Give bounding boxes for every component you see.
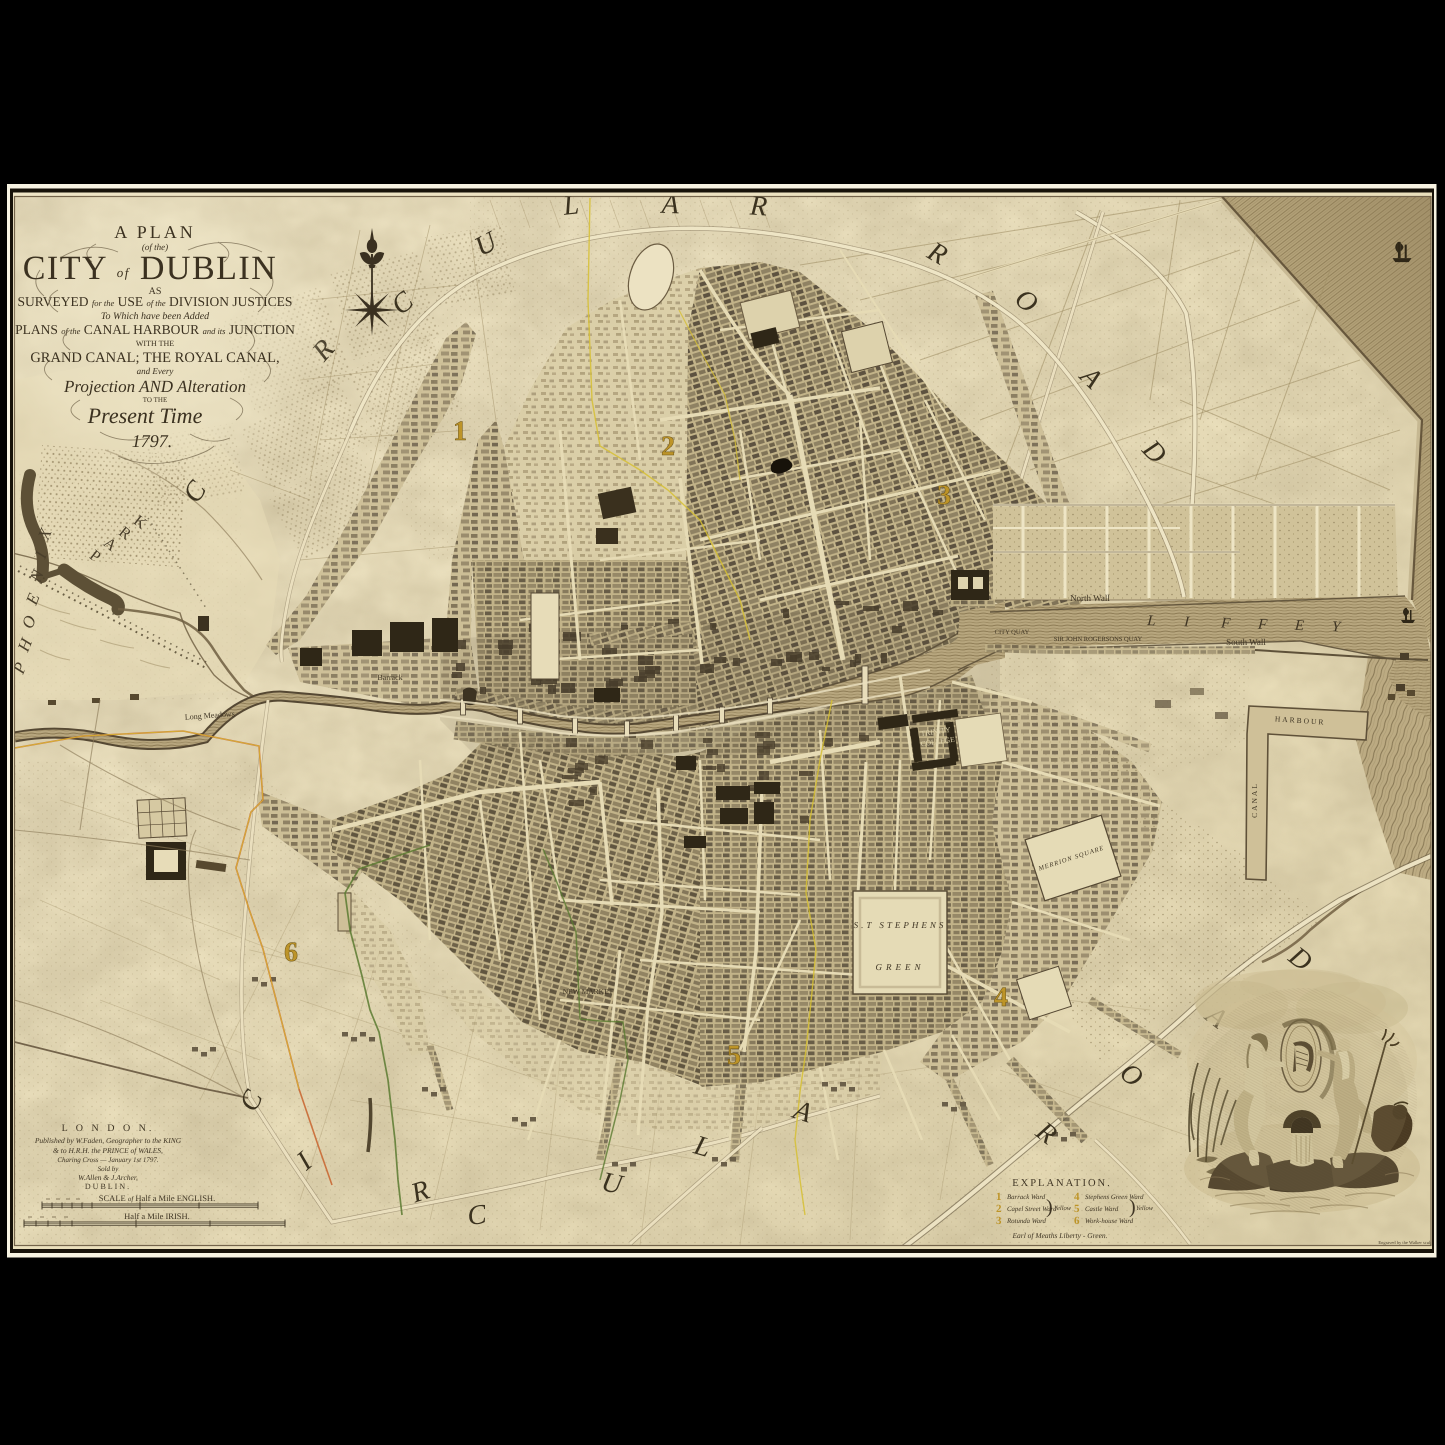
svg-text:Rotunda Ward: Rotunda Ward [1006,1218,1047,1225]
svg-text:6: 6 [284,937,298,968]
svg-text:WITH THE: WITH THE [136,339,174,348]
svg-text:2: 2 [996,1203,1002,1215]
svg-text:E: E [1293,618,1304,635]
svg-text:GRAND CANAL; THE ROYAL CANAL,: GRAND CANAL; THE ROYAL CANAL, [30,350,279,366]
svg-text:3: 3 [937,480,951,511]
svg-text:SIR JOHN ROGERSONS QUAY: SIR JOHN ROGERSONS QUAY [1054,636,1143,643]
svg-text:DUBLIN.: DUBLIN. [85,1182,131,1191]
svg-text:3: 3 [996,1215,1002,1227]
svg-text:5: 5 [1074,1203,1080,1215]
svg-text:Charing Cross — January 1st 17: Charing Cross — January 1st 1797. [57,1156,159,1164]
svg-text:CANAL: CANAL [1250,782,1259,818]
svg-text:5: 5 [727,1040,741,1071]
svg-text:Half a Mile IRISH.: Half a Mile IRISH. [124,1211,190,1221]
svg-text:SCALE of Half a Mile ENGLISH.: SCALE of Half a Mile ENGLISH. [99,1193,215,1203]
svg-text:Present Time: Present Time [87,403,203,428]
svg-text:North Wall: North Wall [1070,593,1110,603]
svg-text:Earl of Meaths Liberty - Green: Earl of Meaths Liberty - Green. [1011,1231,1107,1240]
svg-text:GREEN: GREEN [876,962,925,972]
svg-text:EXPLANATION.: EXPLANATION. [1012,1178,1112,1189]
svg-text:L: L [1146,613,1156,630]
svg-text:4: 4 [1074,1191,1080,1203]
svg-text:Barrack: Barrack [377,673,402,682]
svg-text:2: 2 [661,431,675,462]
svg-text:Published by W.Faden, Geograph: Published by W.Faden, Geographer to the … [34,1136,182,1145]
svg-text:Projection AND Alteration: Projection AND Alteration [63,377,246,396]
svg-text:To Which have been Added: To Which have been Added [101,311,210,322]
svg-text:L O N D O N.: L O N D O N. [62,1123,155,1134]
svg-text:Yellow: Yellow [1054,1205,1072,1212]
svg-text:4: 4 [994,982,1008,1013]
svg-text:Engraved by the Walker sculp.: Engraved by the Walker sculp. [1378,1240,1433,1245]
svg-text:CITY of DUBLIN: CITY of DUBLIN [23,248,278,287]
svg-text:S.T STEPHENS: S.T STEPHENS [854,920,947,930]
svg-text:Sold by: Sold by [98,1165,120,1173]
svg-text:AS: AS [149,286,162,297]
svg-text:Yellow: Yellow [1136,1205,1154,1212]
svg-text:1797.: 1797. [132,431,173,451]
svg-text:): ) [1129,1196,1136,1218]
svg-text:CITY QUAY: CITY QUAY [995,629,1030,636]
svg-text:Work-house Ward: Work-house Ward [1085,1218,1134,1225]
svg-text:& to H.R.H. the PRINCE of WALE: & to H.R.H. the PRINCE of WALES, [53,1146,163,1155]
svg-text:F: F [1220,615,1232,632]
svg-text:Barrack Ward: Barrack Ward [1007,1194,1046,1201]
svg-text:1: 1 [996,1191,1002,1203]
svg-text:): ) [1046,1196,1053,1218]
svg-text:Castle Ward: Castle Ward [1085,1206,1119,1213]
svg-text:W.Allen & J.Archer,: W.Allen & J.Archer, [78,1173,138,1182]
svg-text:and Every: and Every [137,366,174,376]
svg-text:F: F [1256,617,1268,634]
svg-text:NEW MARKET: NEW MARKET [563,987,614,996]
svg-text:1: 1 [453,416,467,447]
svg-text:6: 6 [1074,1215,1080,1227]
svg-text:South Wall: South Wall [1226,637,1266,647]
svg-text:A PLAN: A PLAN [114,222,196,242]
